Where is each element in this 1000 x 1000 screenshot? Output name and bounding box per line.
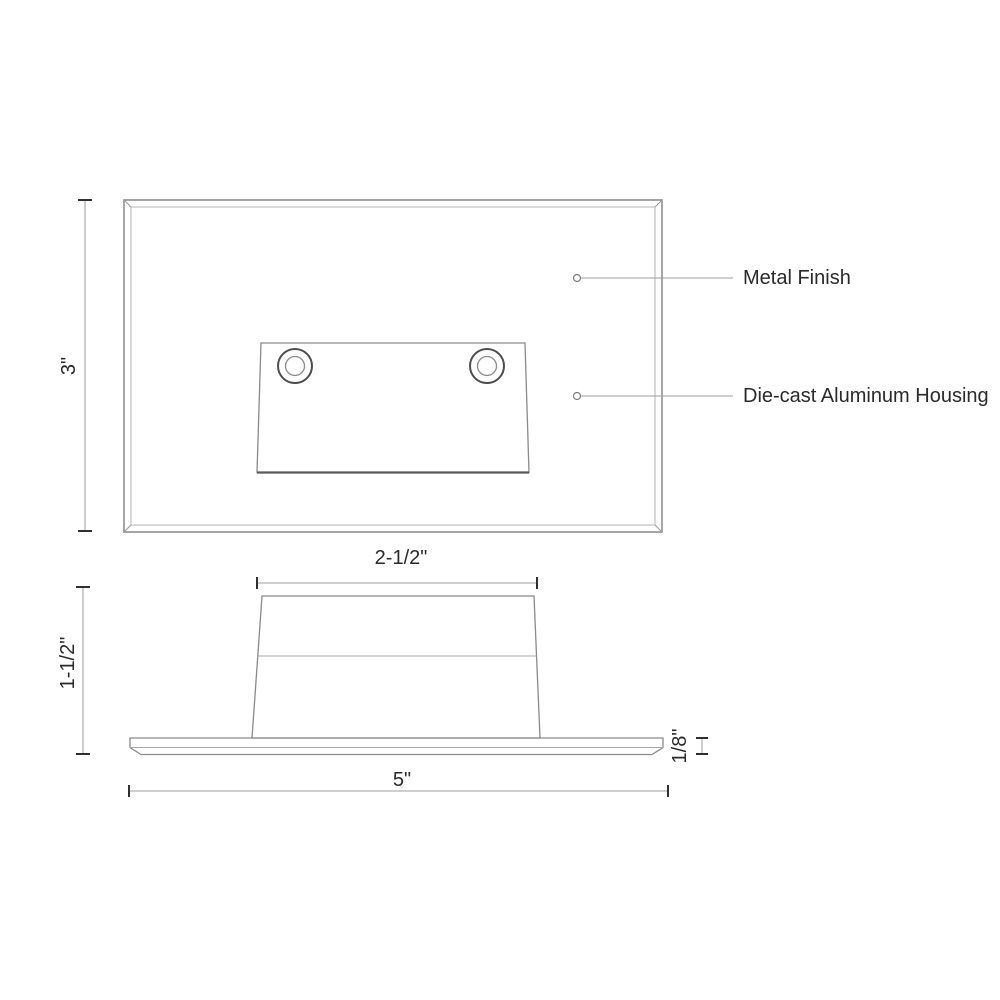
dimension-label-side-height: 1-1/2": [57, 637, 79, 690]
faceplate-outline: [257, 343, 529, 473]
front-view-outer-edge: [124, 200, 662, 532]
side-view: [130, 596, 663, 755]
dimension-label-top-width: 2-1/2": [375, 547, 428, 569]
callout-label-housing: Die-cast Aluminum Housing: [743, 385, 989, 407]
corner-chamfer-bottom-right: [655, 525, 662, 532]
technical-drawing-page: 3" Metal Finish Die-cast Aluminum Housin…: [0, 0, 1000, 1000]
plate-thickness-dimension: 1/8": [669, 729, 708, 764]
leader-dot: [574, 393, 581, 400]
leader-dot: [574, 275, 581, 282]
housing-profile: [252, 596, 540, 738]
screw-left-inner: [286, 357, 305, 376]
corner-chamfer-bottom-left: [124, 525, 131, 532]
front-view-inner-edge: [131, 207, 655, 525]
side-height-dimension: 1-1/2": [57, 587, 90, 754]
corner-chamfer-top-right: [655, 200, 662, 207]
screw-right-inner: [478, 357, 497, 376]
dimension-label-thickness: 1/8": [669, 729, 691, 764]
dimension-label-overall-width: 5": [393, 769, 411, 791]
screw-right-outer: [470, 349, 504, 383]
trim-plate-profile: [130, 738, 663, 755]
screw-left-outer: [278, 349, 312, 383]
callout-metal-finish: Metal Finish: [574, 267, 851, 289]
corner-chamfer-top-left: [124, 200, 131, 207]
front-height-dimension: 3": [58, 200, 92, 531]
callout-housing: Die-cast Aluminum Housing: [574, 385, 989, 407]
front-view: [124, 200, 662, 532]
overall-width-dimension: 5": [129, 769, 668, 797]
side-top-width-dimension: 2-1/2": [257, 547, 537, 589]
technical-drawing-canvas: 3" Metal Finish Die-cast Aluminum Housin…: [0, 0, 1000, 1000]
callout-label-metal-finish: Metal Finish: [743, 267, 851, 289]
dimension-label-height: 3": [58, 357, 80, 375]
